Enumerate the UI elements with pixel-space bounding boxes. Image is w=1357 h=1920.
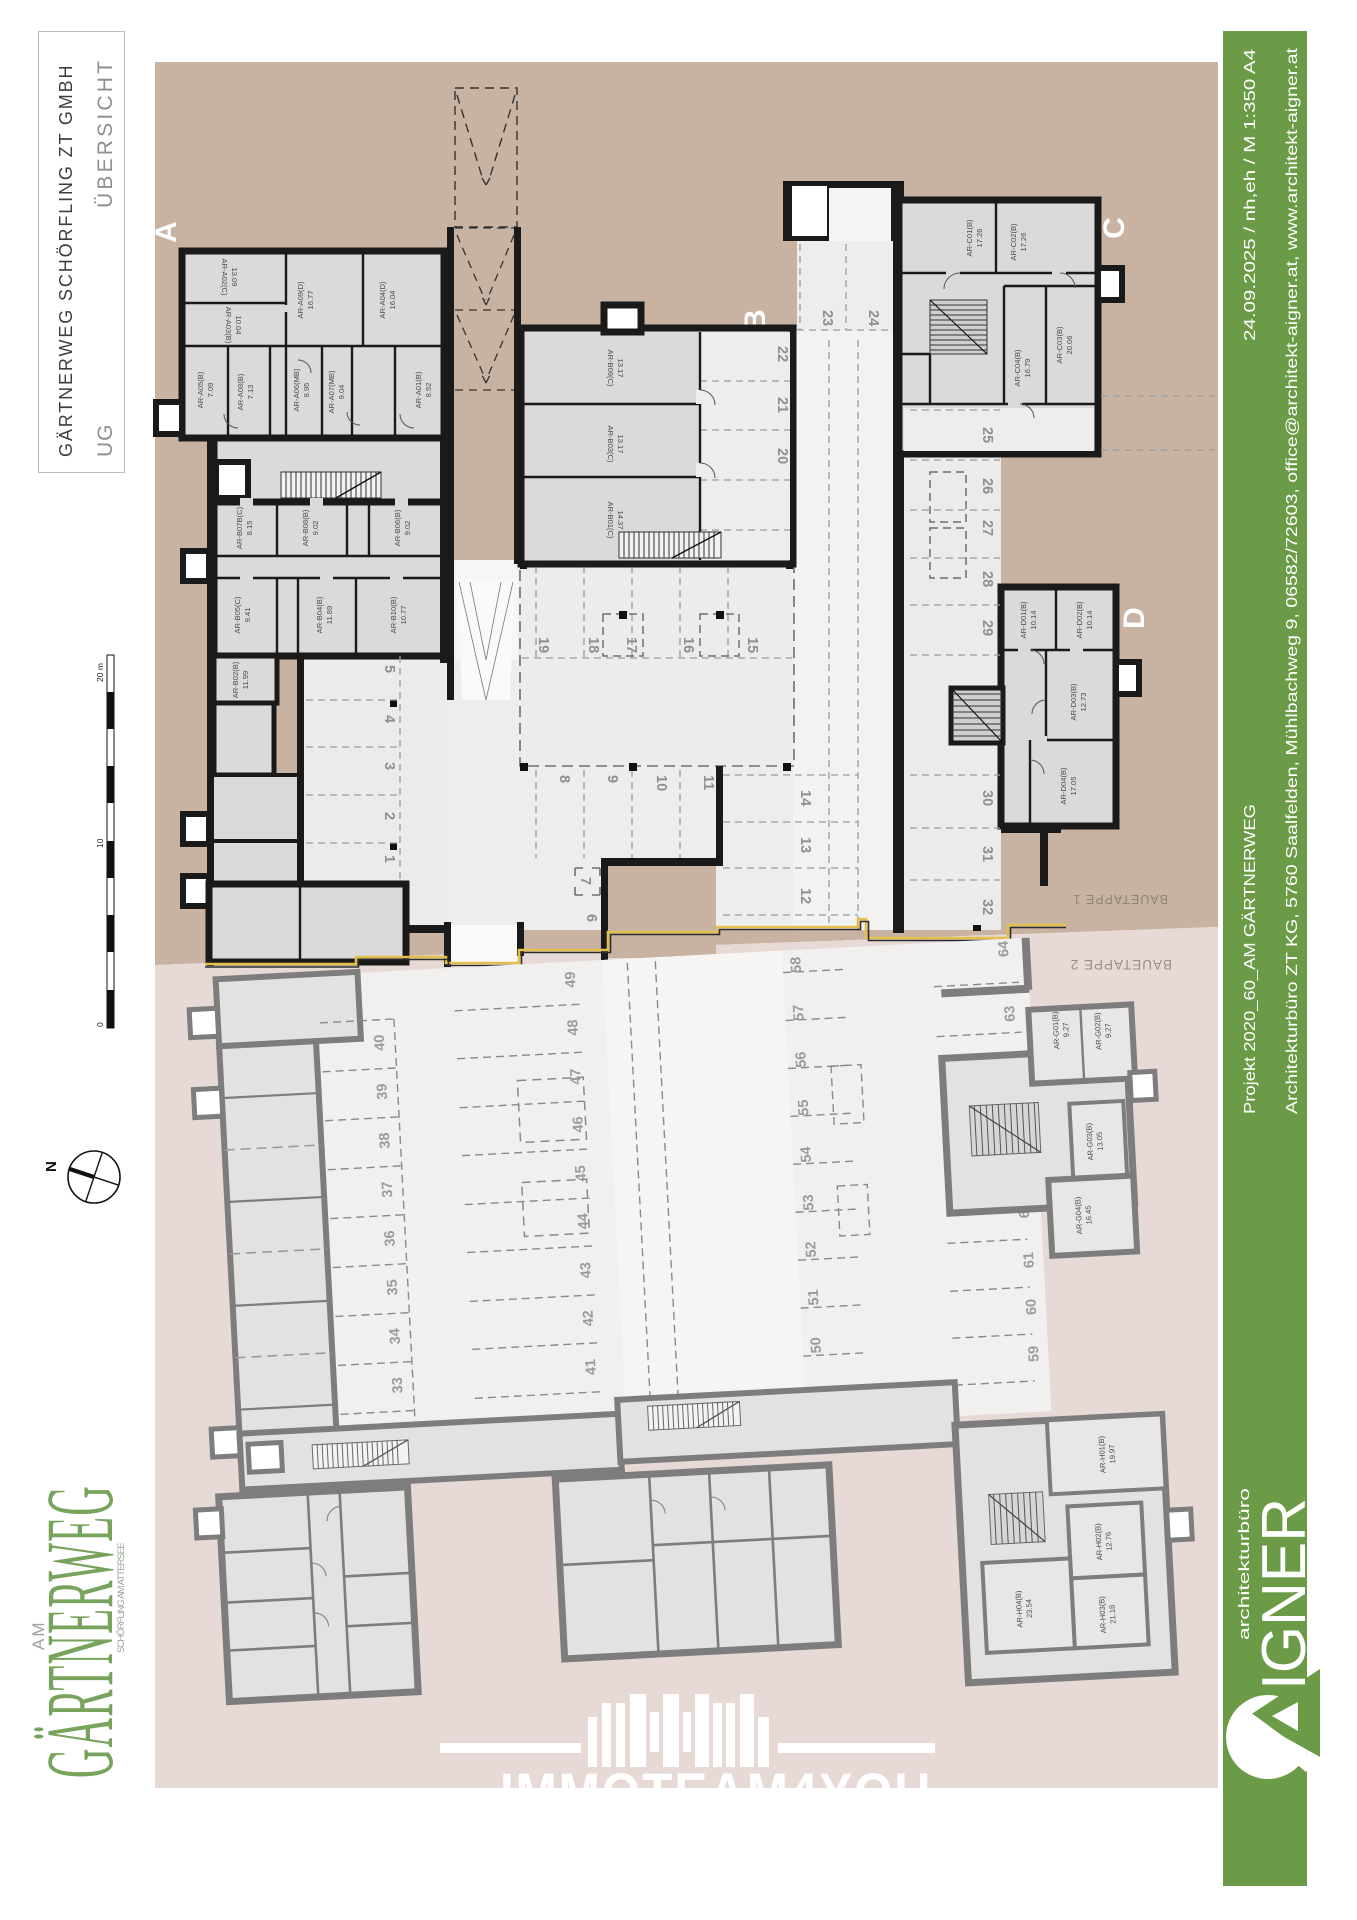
svg-text:5: 5 <box>381 665 397 673</box>
svg-text:19.97: 19.97 <box>1107 1444 1117 1463</box>
svg-text:34: 34 <box>387 1328 404 1345</box>
svg-text:7: 7 <box>577 877 593 885</box>
svg-text:61: 61 <box>1021 1252 1038 1269</box>
svg-text:12.73: 12.73 <box>1079 692 1088 711</box>
svg-text:9.27: 9.27 <box>1103 1023 1113 1038</box>
svg-text:AR-B10(B): AR-B10(B) <box>389 596 398 633</box>
svg-text:43: 43 <box>578 1262 595 1279</box>
svg-text:53: 53 <box>801 1194 818 1211</box>
svg-text:9.02: 9.02 <box>311 521 320 536</box>
svg-text:11.89: 11.89 <box>325 606 334 624</box>
svg-text:21.18: 21.18 <box>1108 1604 1118 1623</box>
svg-text:AR-A08(B): AR-A08(B) <box>236 373 245 410</box>
svg-text:23: 23 <box>819 310 835 326</box>
svg-text:AR-B09(C): AR-B09(C) <box>606 349 615 387</box>
svg-text:Projekt 2020_60_AM GÄRTNERWEG: Projekt 2020_60_AM GÄRTNERWEG <box>1242 804 1259 1114</box>
svg-text:AR-D01(B): AR-D01(B) <box>1019 601 1028 639</box>
svg-text:AR-A07(MB): AR-A07(MB) <box>327 370 336 414</box>
svg-text:57: 57 <box>791 1004 808 1021</box>
svg-text:10: 10 <box>95 838 105 848</box>
svg-text:2: 2 <box>381 812 397 820</box>
svg-text:18: 18 <box>585 637 601 653</box>
svg-text:8.52: 8.52 <box>424 383 433 398</box>
svg-text:AR-A03(B): AR-A03(B) <box>224 307 233 344</box>
svg-text:52: 52 <box>803 1241 820 1258</box>
svg-text:ÜBERSICHT: ÜBERSICHT <box>94 60 117 208</box>
svg-text:29: 29 <box>979 620 995 636</box>
svg-text:10.04: 10.04 <box>234 315 243 334</box>
svg-text:39: 39 <box>374 1083 391 1100</box>
svg-text:17: 17 <box>623 637 639 653</box>
svg-text:17.05: 17.05 <box>1069 776 1078 795</box>
svg-text:49: 49 <box>563 971 580 988</box>
svg-text:40: 40 <box>372 1034 389 1051</box>
svg-text:SCHÖRFLING AM ATTERSEE: SCHÖRFLING AM ATTERSEE <box>116 1541 127 1653</box>
svg-text:AR-D04(B): AR-D04(B) <box>1059 767 1068 805</box>
svg-text:10.77: 10.77 <box>399 605 408 624</box>
svg-text:12: 12 <box>797 888 813 904</box>
svg-text:8: 8 <box>556 775 572 783</box>
svg-text:IMMOTEAM4YOU: IMMOTEAM4YOU <box>500 1761 932 1824</box>
svg-text:UG: UG <box>94 424 117 458</box>
svg-text:35: 35 <box>385 1279 402 1296</box>
svg-text:56: 56 <box>793 1051 810 1068</box>
svg-text:26: 26 <box>979 478 995 494</box>
svg-text:AR-C03(B): AR-C03(B) <box>1055 326 1064 364</box>
svg-text:7.13: 7.13 <box>246 385 255 400</box>
svg-text:D: D <box>1118 607 1151 629</box>
svg-text:GÄRTNERWEG SCHÖRFLING ZT GMB: GÄRTNERWEG SCHÖRFLING ZT GMBH <box>56 65 76 457</box>
svg-text:AR-B03(C): AR-B03(C) <box>606 425 615 463</box>
svg-text:37: 37 <box>379 1181 396 1198</box>
svg-text:32: 32 <box>979 899 995 915</box>
svg-text:AR-A01(B): AR-A01(B) <box>414 371 423 408</box>
svg-text:17.26: 17.26 <box>975 228 984 247</box>
svg-text:AR-A02(C): AR-A02(C) <box>220 258 229 296</box>
svg-text:60: 60 <box>1023 1298 1040 1315</box>
svg-text:46: 46 <box>570 1116 587 1133</box>
svg-text:AR-A06(MB): AR-A06(MB) <box>292 368 301 412</box>
svg-text:16: 16 <box>680 637 696 653</box>
svg-text:16.04: 16.04 <box>388 290 397 309</box>
svg-text:AR-D02(B): AR-D02(B) <box>1075 601 1084 639</box>
svg-text:Architekturbüro ZT KG, 5760 Sa: Architekturbüro ZT KG, 5760 Saalfelden, … <box>1284 47 1301 1114</box>
svg-text:6: 6 <box>583 914 599 922</box>
svg-text:16.79: 16.79 <box>1023 358 1032 377</box>
svg-text:38: 38 <box>377 1132 394 1149</box>
svg-text:16.45: 16.45 <box>1084 1205 1094 1224</box>
svg-text:AR-B07B(C): AR-B07B(C) <box>235 506 244 549</box>
svg-text:4: 4 <box>381 715 397 723</box>
svg-text:AR-B08(B): AR-B08(B) <box>301 509 310 546</box>
svg-text:64: 64 <box>996 940 1013 957</box>
svg-text:8.15: 8.15 <box>245 521 254 536</box>
svg-text:AR-A05(B): AR-A05(B) <box>196 371 205 408</box>
svg-text:AR-B01(C): AR-B01(C) <box>606 501 615 539</box>
svg-text:IGNER: IGNER <box>1250 1498 1319 1690</box>
svg-text:BAUETAPPE 1: BAUETAPPE 1 <box>1072 892 1168 906</box>
svg-text:8.95: 8.95 <box>302 383 311 398</box>
svg-text:48: 48 <box>565 1019 582 1036</box>
svg-text:AR-C01(B): AR-C01(B) <box>965 219 974 257</box>
svg-text:A: A <box>150 221 183 243</box>
svg-text:AR-C04(B): AR-C04(B) <box>1013 349 1022 387</box>
svg-text:16.77: 16.77 <box>306 290 315 309</box>
svg-text:AR-A09(D): AR-A09(D) <box>296 281 305 319</box>
svg-text:0: 0 <box>95 1022 105 1027</box>
svg-text:13.05: 13.05 <box>1095 1132 1105 1151</box>
svg-text:10.14: 10.14 <box>1029 610 1038 629</box>
svg-text:10: 10 <box>653 775 669 791</box>
svg-text:13.09: 13.09 <box>230 267 239 286</box>
svg-text:1: 1 <box>381 855 397 863</box>
svg-text:22: 22 <box>774 346 790 362</box>
svg-text:N: N <box>43 1161 60 1172</box>
svg-text:54: 54 <box>798 1146 815 1163</box>
svg-text:13.17: 13.17 <box>616 434 625 453</box>
svg-text:AR-B04(B): AR-B04(B) <box>315 596 324 633</box>
svg-text:AR-B05(C): AR-B05(C) <box>233 596 242 634</box>
svg-text:24.09.2025 / nh,eh / M 1:350 A: 24.09.2025 / nh,eh / M 1:350 A4 <box>1242 49 1259 341</box>
svg-text:36: 36 <box>382 1230 399 1247</box>
svg-text:63: 63 <box>1002 1005 1019 1022</box>
svg-text:11.99: 11.99 <box>241 671 250 689</box>
svg-text:21: 21 <box>774 397 790 413</box>
svg-text:20 m: 20 m <box>95 663 105 682</box>
svg-text:24: 24 <box>865 310 881 326</box>
svg-text:59: 59 <box>1026 1345 1043 1362</box>
svg-text:9.41: 9.41 <box>243 608 252 623</box>
svg-text:47: 47 <box>568 1068 585 1085</box>
svg-text:AR-B06(B): AR-B06(B) <box>393 509 402 546</box>
svg-text:19: 19 <box>535 637 551 653</box>
svg-text:25: 25 <box>979 427 995 443</box>
svg-text:AR-B02(B): AR-B02(B) <box>231 661 240 698</box>
svg-text:20.06: 20.06 <box>1065 335 1074 354</box>
svg-text:13.17: 13.17 <box>616 358 625 377</box>
svg-text:C: C <box>1098 217 1131 239</box>
svg-text:41: 41 <box>583 1359 600 1376</box>
svg-text:42: 42 <box>580 1310 597 1327</box>
svg-text:55: 55 <box>796 1099 813 1116</box>
svg-text:14.37: 14.37 <box>616 510 625 529</box>
svg-text:28: 28 <box>979 571 995 587</box>
svg-text:23.54: 23.54 <box>1024 1599 1034 1618</box>
svg-text:50: 50 <box>808 1337 825 1354</box>
svg-text:architekturbüro: architekturbüro <box>1236 1488 1253 1640</box>
svg-text:30: 30 <box>979 790 995 806</box>
svg-text:9.27: 9.27 <box>1061 1022 1071 1037</box>
svg-text:11: 11 <box>700 775 716 790</box>
svg-text:AR-D03(B): AR-D03(B) <box>1069 683 1078 721</box>
svg-text:15: 15 <box>744 637 760 653</box>
svg-text:9: 9 <box>604 775 620 783</box>
svg-text:12.76: 12.76 <box>1104 1532 1114 1551</box>
svg-text:17.26: 17.26 <box>1019 232 1028 251</box>
svg-text:AR-C02(B): AR-C02(B) <box>1009 223 1018 261</box>
svg-text:13: 13 <box>797 837 813 853</box>
svg-text:27: 27 <box>979 520 995 536</box>
svg-text:BAUETAPPE 2: BAUETAPPE 2 <box>1070 957 1172 972</box>
svg-text:7.09: 7.09 <box>206 383 215 398</box>
svg-text:58: 58 <box>788 956 805 973</box>
svg-text:9.04: 9.04 <box>337 385 346 400</box>
svg-text:9.02: 9.02 <box>403 521 412 536</box>
svg-text:31: 31 <box>979 846 995 862</box>
svg-text:10.14: 10.14 <box>1085 610 1094 629</box>
svg-text:3: 3 <box>381 762 397 770</box>
svg-text:33: 33 <box>390 1377 407 1394</box>
svg-text:20: 20 <box>774 448 790 464</box>
svg-text:AR-A04(D): AR-A04(D) <box>378 281 387 319</box>
svg-text:14: 14 <box>797 790 813 806</box>
svg-text:51: 51 <box>806 1289 823 1306</box>
